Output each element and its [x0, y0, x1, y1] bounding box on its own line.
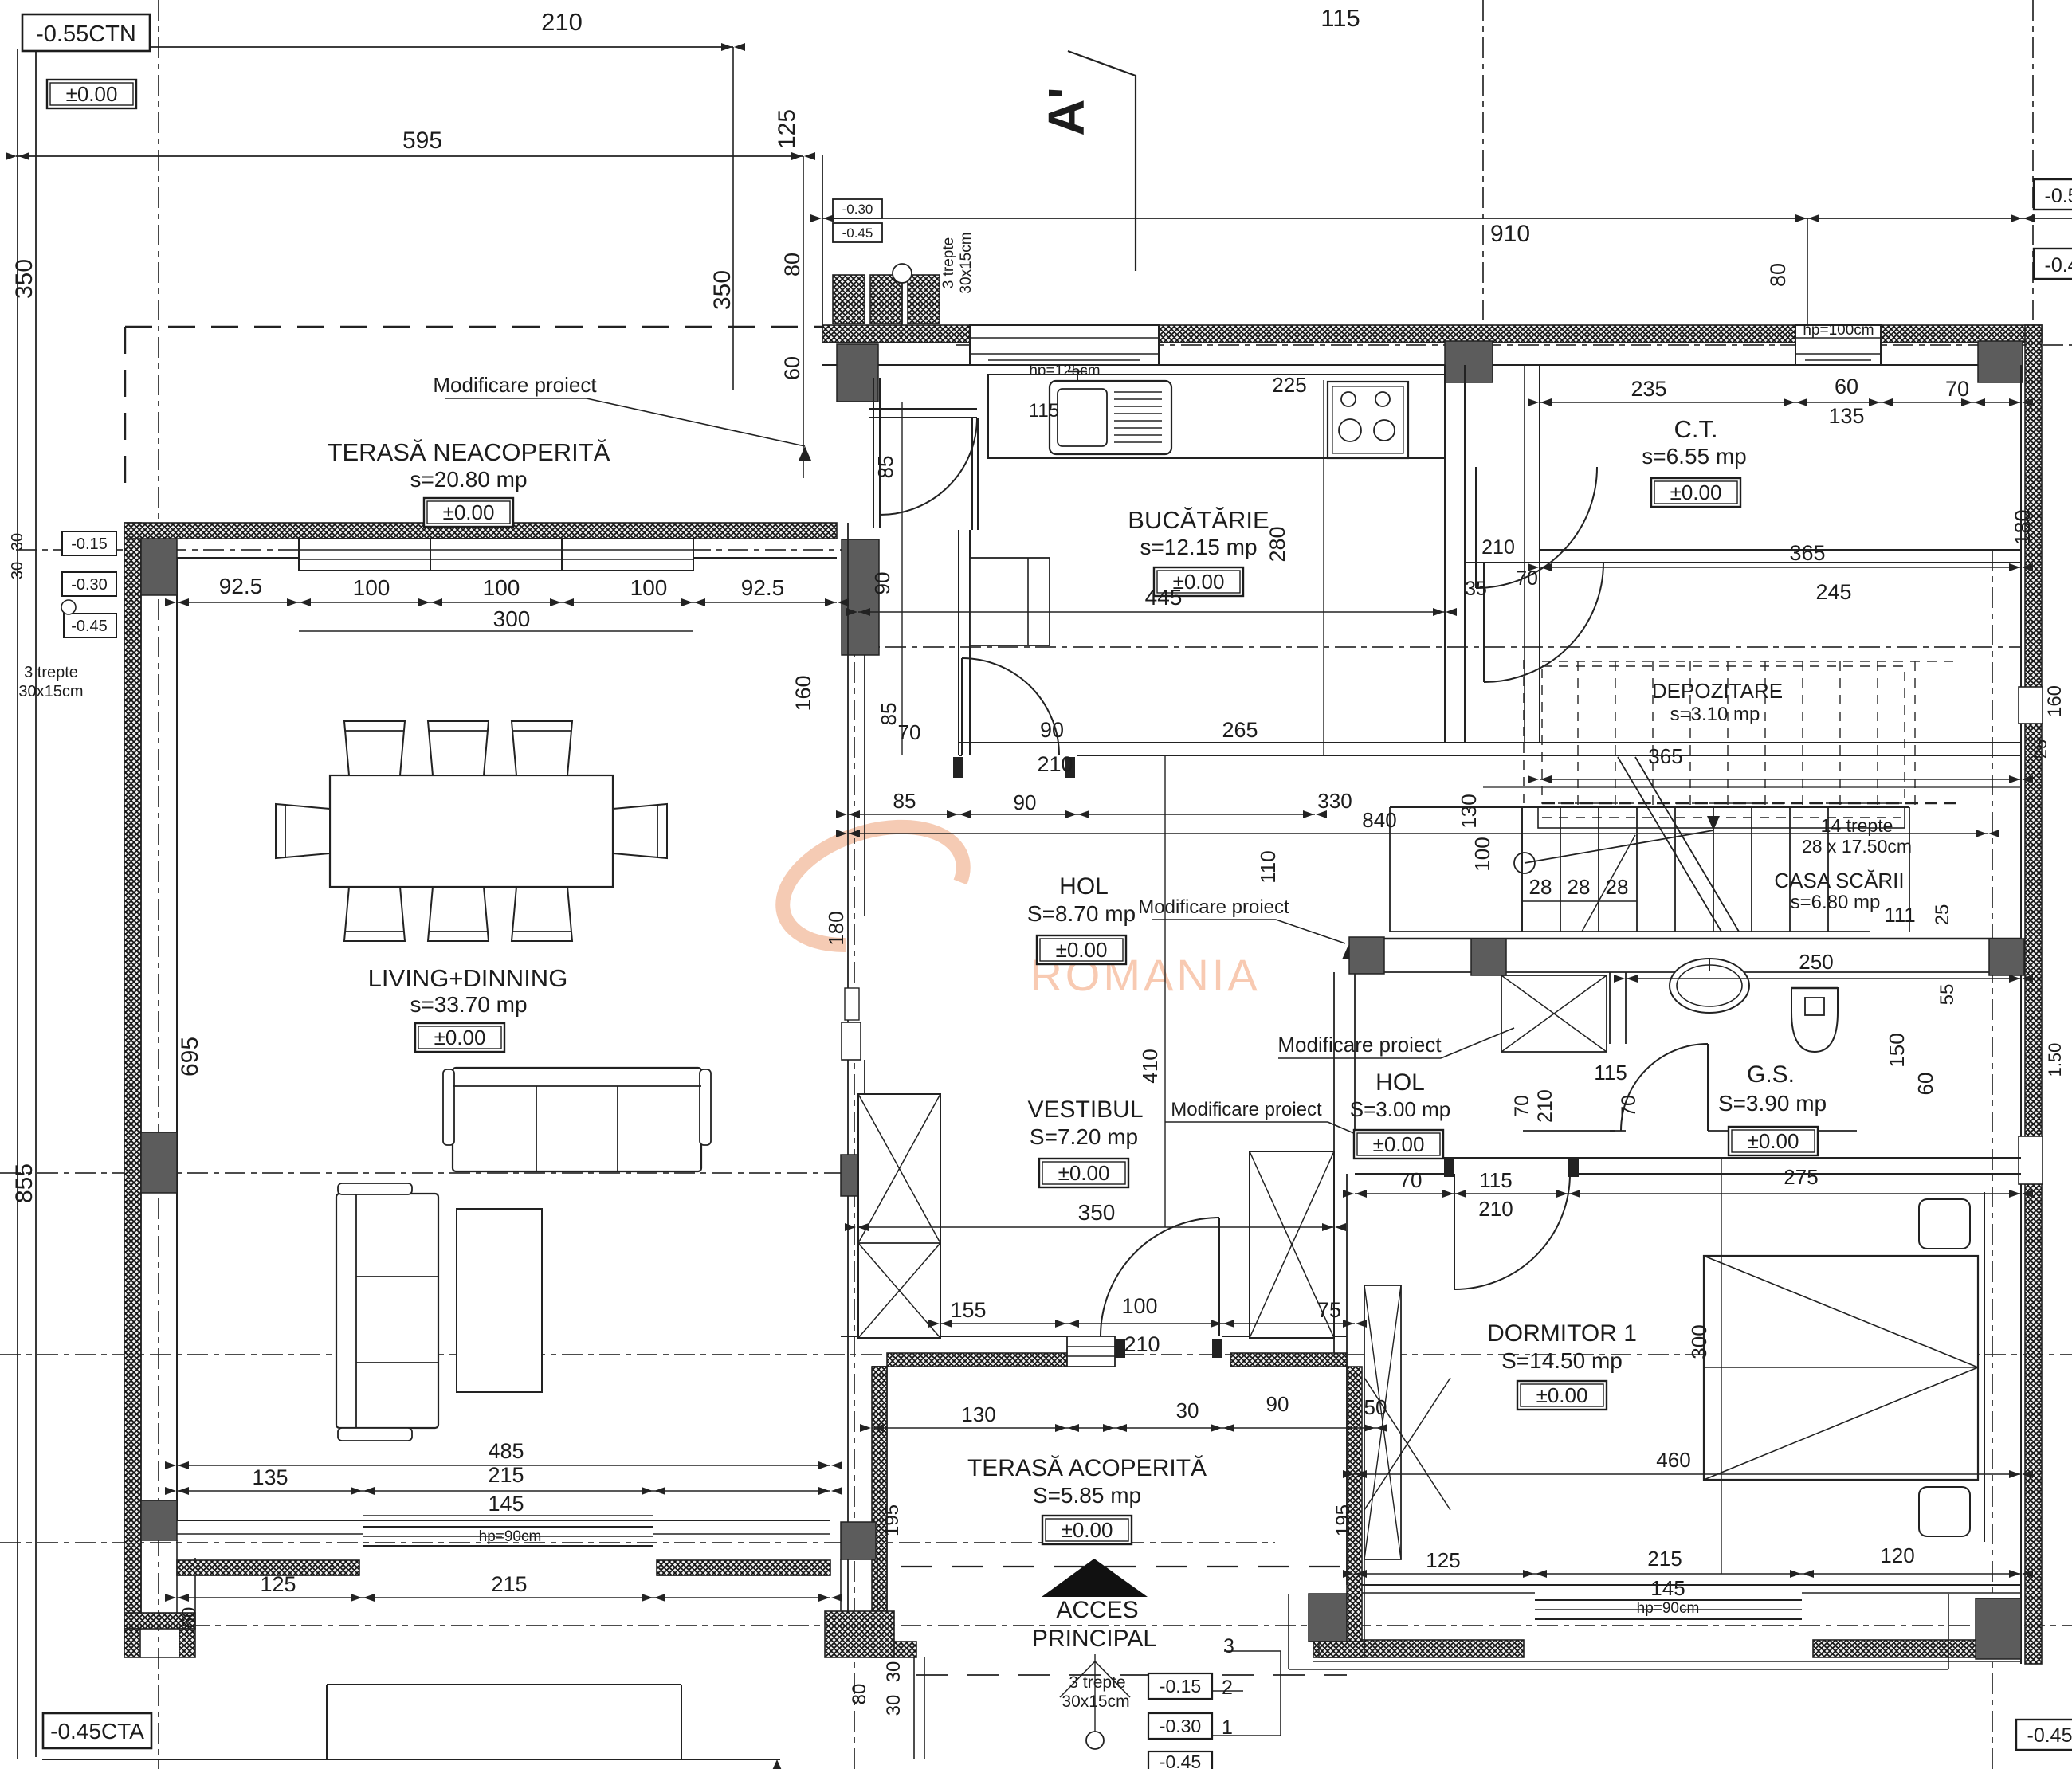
svg-text:-0.45: -0.45	[2045, 254, 2072, 277]
svg-text:30x15cm: 30x15cm	[18, 683, 83, 700]
svg-text:145: 145	[488, 1492, 524, 1516]
svg-text:365: 365	[1789, 541, 1825, 565]
svg-text:195: 195	[1332, 1504, 1354, 1536]
svg-text:485: 485	[488, 1439, 524, 1463]
svg-text:S=5.85 mp: S=5.85 mp	[1033, 1483, 1141, 1508]
svg-text:135: 135	[1828, 404, 1864, 428]
svg-text:330: 330	[1317, 789, 1352, 813]
svg-text:30x15cm: 30x15cm	[958, 232, 975, 293]
svg-text:210: 210	[1037, 752, 1073, 776]
svg-text:±0.00: ±0.00	[1670, 480, 1722, 504]
svg-text:1.50: 1.50	[2045, 1043, 2065, 1077]
svg-text:70: 70	[898, 720, 921, 744]
svg-text:-0.45: -0.45	[71, 618, 108, 635]
svg-text:80: 80	[849, 1684, 870, 1705]
svg-text:75: 75	[1317, 1298, 1341, 1322]
svg-text:85: 85	[877, 703, 901, 726]
svg-text:25: 25	[2031, 739, 2050, 759]
svg-text:-0.55CTN: -0.55CTN	[36, 22, 136, 47]
svg-text:90: 90	[870, 572, 894, 595]
svg-text:210: 210	[541, 8, 583, 36]
svg-text:910: 910	[1490, 221, 1530, 247]
svg-text:115: 115	[1029, 400, 1059, 422]
svg-text:28: 28	[1568, 875, 1591, 899]
svg-text:70: 70	[1399, 1168, 1423, 1192]
svg-text:130: 130	[961, 1402, 995, 1426]
svg-text:S=7.20 mp: S=7.20 mp	[1030, 1124, 1138, 1149]
svg-text:S=3.90 mp: S=3.90 mp	[1718, 1091, 1827, 1116]
svg-text:350: 350	[1078, 1200, 1116, 1225]
svg-text:-0.45: -0.45	[2027, 1724, 2072, 1747]
svg-text:3 trepte: 3 trepte	[940, 237, 957, 288]
svg-text:130: 130	[1457, 794, 1481, 828]
svg-text:25: 25	[1932, 904, 1953, 926]
svg-text:135: 135	[252, 1465, 288, 1489]
svg-text:ACCES: ACCES	[1056, 1597, 1138, 1623]
svg-text:210: 210	[1124, 1332, 1160, 1356]
svg-text:s=6.55 mp: s=6.55 mp	[1642, 444, 1747, 469]
svg-text:30: 30	[883, 1661, 905, 1683]
svg-text:-0.30: -0.30	[842, 202, 873, 217]
svg-text:460: 460	[1656, 1448, 1690, 1472]
svg-text:HOL: HOL	[1059, 873, 1109, 900]
svg-text:115: 115	[1594, 1061, 1627, 1085]
svg-text:-0.30: -0.30	[71, 576, 108, 594]
svg-text:125: 125	[260, 1572, 296, 1596]
svg-text:28: 28	[1606, 875, 1629, 899]
svg-text:±0.00: ±0.00	[434, 1026, 486, 1049]
svg-text:100: 100	[483, 575, 520, 600]
svg-text:Modificare proiect: Modificare proiect	[1277, 1033, 1442, 1057]
svg-text:2: 2	[1222, 1677, 1233, 1699]
svg-text:hp=90cm: hp=90cm	[1637, 1600, 1700, 1617]
svg-text:55: 55	[1937, 984, 1958, 1006]
svg-text:35: 35	[1465, 578, 1487, 600]
svg-text:445: 445	[1145, 585, 1183, 610]
svg-text:210: 210	[1481, 536, 1515, 559]
svg-text:TERASĂ ACOPERITĂ: TERASĂ ACOPERITĂ	[967, 1455, 1207, 1481]
svg-text:100: 100	[630, 575, 668, 600]
svg-text:250: 250	[1799, 950, 1833, 974]
svg-text:s=33.70 mp: s=33.70 mp	[410, 992, 527, 1017]
svg-text:s=3.10 mp: s=3.10 mp	[1670, 704, 1760, 725]
svg-text:LIVING+DINNING: LIVING+DINNING	[368, 964, 568, 992]
svg-text:300: 300	[493, 606, 531, 631]
svg-text:90: 90	[1040, 718, 1064, 742]
svg-text:-0.15: -0.15	[1160, 1676, 1201, 1696]
svg-text:60: 60	[1835, 375, 1858, 398]
svg-text:30: 30	[9, 562, 26, 579]
svg-text:235: 235	[1631, 377, 1666, 401]
svg-text:±0.00: ±0.00	[1748, 1129, 1799, 1153]
svg-text:215: 215	[488, 1463, 524, 1487]
svg-text:855: 855	[11, 1163, 37, 1203]
svg-text:±0.00: ±0.00	[1373, 1132, 1425, 1156]
svg-text:DORMITOR 1: DORMITOR 1	[1487, 1320, 1637, 1347]
svg-text:±0.00: ±0.00	[443, 500, 495, 524]
svg-text:350: 350	[709, 270, 736, 310]
svg-text:265: 265	[1222, 718, 1258, 742]
svg-text:100: 100	[1470, 837, 1494, 871]
svg-text:50: 50	[1364, 1395, 1387, 1419]
svg-text:180: 180	[2011, 509, 2035, 545]
svg-text:TERASĂ NEACOPERITĂ: TERASĂ NEACOPERITĂ	[328, 438, 610, 466]
svg-text:595: 595	[402, 127, 442, 154]
svg-text:111: 111	[1884, 903, 1916, 927]
svg-text:90: 90	[1266, 1392, 1289, 1416]
svg-text:1: 1	[1222, 1716, 1233, 1739]
svg-text:30: 30	[883, 1695, 905, 1716]
svg-text:CASA SCĂRII: CASA SCĂRII	[1774, 869, 1904, 892]
svg-text:92.5: 92.5	[741, 575, 785, 600]
svg-text:-0.45: -0.45	[1160, 1751, 1201, 1769]
svg-text:BUCĂTĂRIE: BUCĂTĂRIE	[1128, 506, 1269, 534]
svg-text:s=12.15 mp: s=12.15 mp	[1140, 535, 1257, 559]
svg-text:210: 210	[1478, 1197, 1513, 1221]
svg-text:70: 70	[1618, 1095, 1640, 1117]
svg-text:210: 210	[1534, 1089, 1556, 1123]
svg-text:92.5: 92.5	[219, 574, 263, 598]
svg-text:125: 125	[1426, 1548, 1460, 1572]
svg-text:85: 85	[893, 789, 916, 813]
svg-text:70: 70	[1516, 567, 1538, 590]
svg-text:110: 110	[1256, 850, 1280, 883]
svg-text:±0.00: ±0.00	[1058, 1161, 1110, 1185]
svg-text:3 trepte: 3 trepte	[1069, 1673, 1125, 1692]
svg-text:70: 70	[1945, 377, 1969, 401]
svg-text:HOL: HOL	[1375, 1069, 1425, 1096]
svg-text:115: 115	[1321, 4, 1360, 32]
svg-text:-0.55: -0.55	[2045, 185, 2072, 207]
svg-text:145: 145	[1650, 1576, 1685, 1600]
svg-text:hp=90cm: hp=90cm	[479, 1528, 542, 1545]
svg-text:100: 100	[1121, 1294, 1157, 1318]
svg-text:-0.15: -0.15	[71, 535, 108, 553]
svg-text:-0.45: -0.45	[842, 226, 873, 241]
svg-text:30: 30	[9, 533, 26, 551]
svg-text:215: 215	[1647, 1547, 1682, 1571]
svg-text:80: 80	[1766, 263, 1790, 287]
svg-text:90: 90	[1014, 790, 1037, 814]
svg-text:100: 100	[353, 575, 390, 600]
svg-text:280: 280	[1266, 526, 1289, 562]
svg-text:Modificare proiect: Modificare proiect	[433, 373, 597, 397]
svg-text:60: 60	[780, 356, 804, 380]
svg-text:365: 365	[1648, 744, 1682, 768]
svg-text:28 x 17.50cm: 28 x 17.50cm	[1802, 836, 1912, 857]
svg-text:3: 3	[1223, 1635, 1234, 1657]
svg-text:hp=100cm: hp=100cm	[1803, 322, 1874, 339]
svg-text:S=8.70 mp: S=8.70 mp	[1027, 901, 1136, 926]
svg-text:160: 160	[791, 675, 815, 711]
svg-text:VESTIBUL: VESTIBUL	[1027, 1096, 1143, 1123]
svg-text:225: 225	[1272, 373, 1306, 397]
svg-text:410: 410	[1138, 1049, 1162, 1083]
svg-text:-0.45CTA: -0.45CTA	[50, 1719, 144, 1744]
svg-text:±0.00: ±0.00	[1056, 938, 1108, 962]
svg-text:S=14.50 mp: S=14.50 mp	[1501, 1348, 1623, 1373]
svg-text:150: 150	[1885, 1033, 1909, 1067]
svg-text:14 trepte: 14 trepte	[1821, 815, 1893, 836]
svg-text:195: 195	[881, 1504, 903, 1536]
svg-text:C.T.: C.T.	[1674, 415, 1717, 443]
svg-text:275: 275	[1784, 1165, 1818, 1189]
svg-text:300: 300	[1687, 1324, 1711, 1359]
svg-text:S=3.00 mp: S=3.00 mp	[1350, 1097, 1450, 1121]
svg-text:±0.00: ±0.00	[1062, 1518, 1113, 1542]
svg-text:60: 60	[1913, 1073, 1937, 1096]
svg-text:s=6.80 mp: s=6.80 mp	[1791, 892, 1881, 913]
svg-text:3 trepte: 3 trepte	[24, 664, 78, 681]
svg-text:28: 28	[1529, 875, 1552, 899]
svg-text:215: 215	[491, 1572, 527, 1596]
svg-text:±0.00: ±0.00	[1536, 1383, 1588, 1407]
svg-text:245: 245	[1815, 580, 1851, 604]
svg-text:30: 30	[1176, 1398, 1199, 1422]
svg-text:350: 350	[11, 259, 37, 299]
svg-text:80: 80	[780, 253, 804, 277]
svg-text:A': A'	[1038, 87, 1095, 135]
svg-text:155: 155	[950, 1298, 986, 1322]
svg-text:70: 70	[1511, 1095, 1533, 1117]
svg-text:160: 160	[2044, 685, 2066, 717]
svg-text:Modificare proiect: Modificare proiect	[1171, 1099, 1322, 1120]
svg-text:±0.00: ±0.00	[66, 82, 118, 106]
svg-text:840: 840	[1362, 808, 1396, 832]
svg-text:60: 60	[179, 1607, 200, 1629]
svg-text:125: 125	[774, 109, 800, 149]
svg-text:85: 85	[873, 456, 897, 479]
svg-text:DEPOZITARE: DEPOZITARE	[1652, 679, 1783, 703]
svg-text:PRINCIPAL: PRINCIPAL	[1032, 1626, 1156, 1652]
svg-text:-0.30: -0.30	[1160, 1716, 1201, 1736]
svg-text:695: 695	[177, 1037, 203, 1077]
svg-text:Modificare proiect: Modificare proiect	[1138, 896, 1289, 918]
svg-text:180: 180	[824, 911, 848, 945]
svg-text:120: 120	[1880, 1543, 1914, 1567]
svg-text:30x15cm: 30x15cm	[1062, 1693, 1129, 1711]
svg-text:s=20.80 mp: s=20.80 mp	[410, 467, 527, 492]
svg-text:115: 115	[1479, 1168, 1512, 1192]
svg-text:G.S.: G.S.	[1747, 1061, 1795, 1088]
